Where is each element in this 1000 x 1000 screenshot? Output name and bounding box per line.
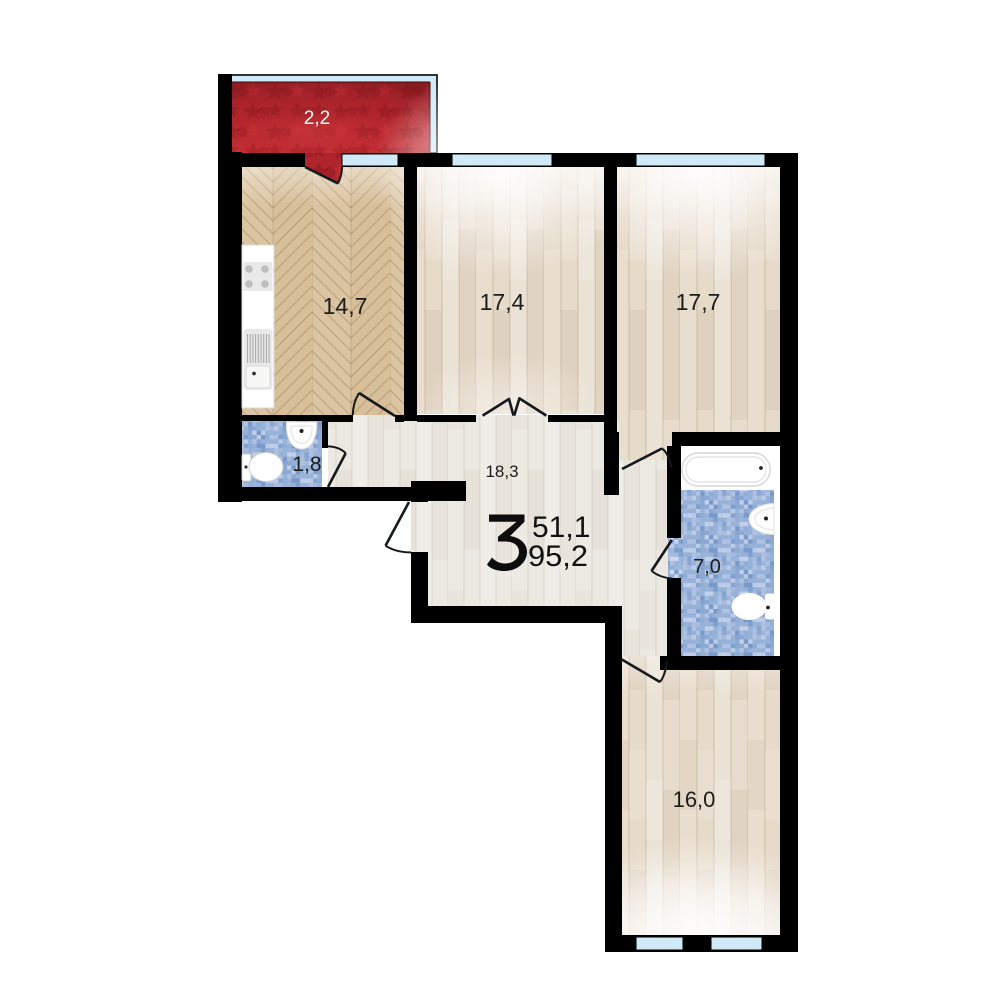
svg-text:95,2: 95,2 [528,540,588,573]
svg-text:7,0: 7,0 [693,556,721,578]
svg-text:18,3: 18,3 [485,462,518,481]
svg-text:1,8: 1,8 [292,453,321,476]
svg-text:14,7: 14,7 [323,293,368,319]
svg-text:17,7: 17,7 [676,289,721,315]
svg-text:16,0: 16,0 [673,787,716,812]
svg-text:17,4: 17,4 [480,289,525,315]
svg-text:2,2: 2,2 [304,108,330,129]
